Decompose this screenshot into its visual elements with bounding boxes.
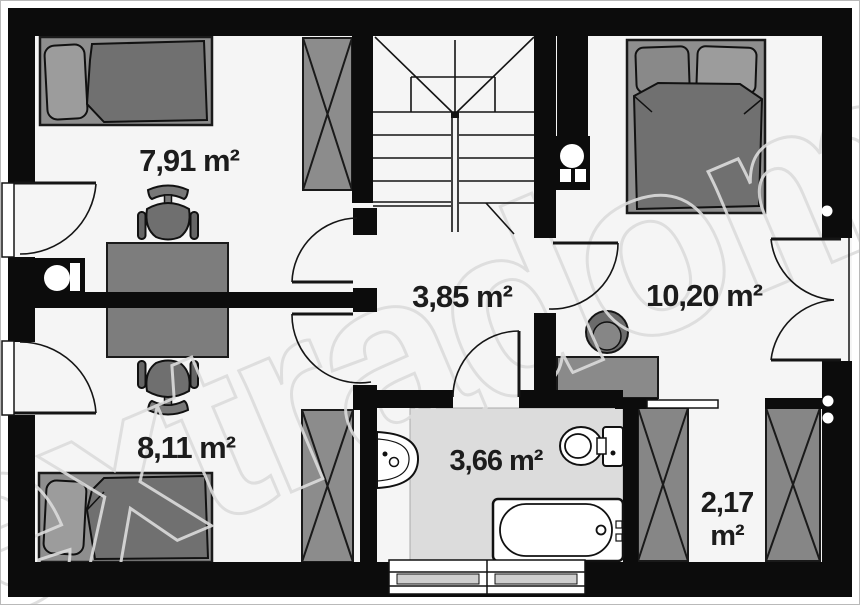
wall-dot [823,413,834,424]
wall [353,288,377,312]
room-area-label-closet-value: 2,17 [701,487,753,519]
wall [534,313,556,402]
chimney-icon [35,258,85,298]
wall [353,208,377,235]
sliding-door-leaf [647,400,718,408]
wall-dot [822,206,833,217]
wall [765,398,822,409]
pillow [44,44,88,120]
wall [534,36,556,238]
single-bed-icon [40,37,212,125]
room-area-label-closet-unit: m² [710,520,745,552]
wardrobe-icon [766,408,820,561]
wardrobe-icon [638,408,688,561]
wall [822,361,852,562]
wardrobe-icon [303,38,352,190]
wall [8,36,35,183]
bathtub-icon [493,499,623,561]
toilet-icon [560,427,623,466]
room-area-label-bedroom-bottom-left: 8,11 m² [137,430,236,465]
wall [8,415,35,597]
floor-plan-page: extradom [0,0,860,605]
window [389,560,585,594]
room-area-label-bathroom: 3,66 m² [450,445,544,477]
wall [352,36,373,203]
wall [360,390,377,562]
wall [519,390,623,408]
wall-dot [823,396,834,407]
chimney-icon [556,136,590,190]
floor-plan-svg: extradom [0,0,860,605]
duvet [87,41,207,122]
wall [623,408,638,562]
wall [557,36,588,136]
room-area-label-bedroom-top-left: 7,91 m² [139,143,240,178]
room-area-label-hallway: 3,85 m² [412,279,513,314]
room-area-label-bedroom-right: 10,20 m² [646,278,763,313]
wall [8,8,852,36]
wall [377,390,453,408]
